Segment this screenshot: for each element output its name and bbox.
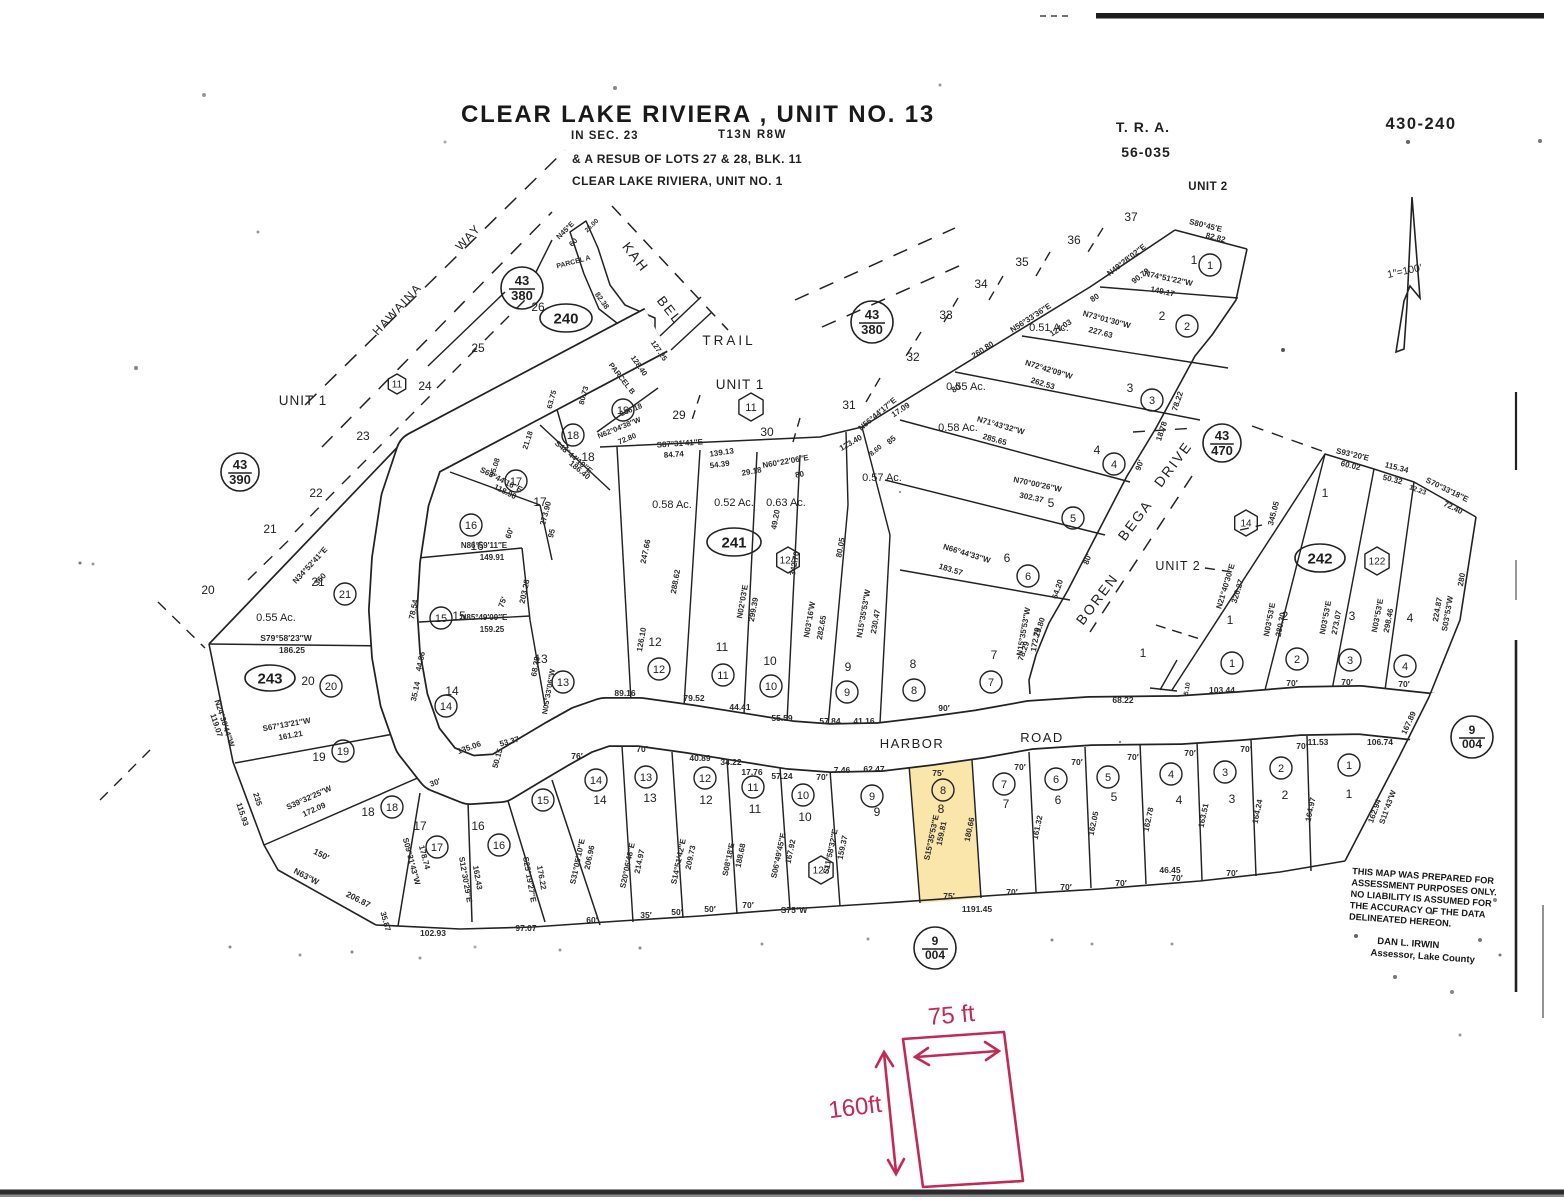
svg-text:13: 13 [643, 791, 657, 805]
svg-text:IN SEC. 23: IN SEC. 23 [571, 130, 639, 142]
svg-text:19: 19 [337, 746, 349, 758]
svg-text:15: 15 [435, 613, 447, 625]
svg-text:14: 14 [1240, 519, 1252, 530]
svg-text:10: 10 [763, 654, 777, 668]
svg-text:18: 18 [361, 805, 375, 819]
svg-text:T13N R8W: T13N R8W [718, 129, 787, 141]
svg-text:26: 26 [531, 300, 545, 314]
svg-text:70′: 70′ [1014, 762, 1026, 772]
svg-text:4: 4 [1094, 443, 1101, 457]
svg-text:242: 242 [1307, 550, 1332, 567]
svg-text:10: 10 [765, 681, 777, 693]
svg-text:S79°58′23″W: S79°58′23″W [260, 633, 313, 643]
svg-text:89.16: 89.16 [614, 688, 636, 698]
svg-text:390: 390 [229, 472, 251, 487]
svg-text:3: 3 [1149, 395, 1155, 407]
svg-text:149.91: 149.91 [480, 553, 505, 562]
svg-text:57.84: 57.84 [819, 716, 841, 726]
svg-text:7.46: 7.46 [834, 765, 851, 775]
svg-text:ROAD: ROAD [1020, 730, 1064, 745]
svg-text:1: 1 [1207, 260, 1213, 272]
svg-text:2: 2 [1294, 654, 1300, 666]
svg-text:103.44: 103.44 [1209, 685, 1235, 695]
svg-text:18: 18 [386, 802, 398, 814]
svg-text:6: 6 [1055, 793, 1062, 807]
svg-text:9: 9 [1469, 723, 1476, 737]
svg-text:240: 240 [553, 310, 578, 327]
svg-text:17: 17 [413, 819, 427, 833]
svg-text:CLEAR LAKE RIVIERA , UNIT N: CLEAR LAKE RIVIERA , UNIT NO. 13 [461, 101, 935, 128]
svg-text:70′: 70′ [816, 772, 828, 782]
svg-text:12: 12 [648, 635, 662, 649]
svg-text:62.47: 62.47 [863, 764, 885, 774]
svg-text:UNIT 2: UNIT 2 [1155, 559, 1200, 573]
svg-text:22: 22 [309, 486, 323, 500]
svg-text:15: 15 [537, 795, 549, 807]
svg-text:16: 16 [465, 520, 477, 532]
svg-text:5: 5 [1070, 513, 1076, 525]
svg-text:2: 2 [1282, 788, 1289, 802]
svg-text:30: 30 [760, 425, 774, 439]
svg-text:97.07: 97.07 [515, 923, 537, 933]
svg-text:0.58 Ac.: 0.58 Ac. [652, 499, 692, 511]
svg-text:13: 13 [640, 772, 652, 784]
svg-text:70′: 70′ [636, 744, 648, 754]
svg-text:4: 4 [1407, 611, 1414, 625]
svg-text:1: 1 [1191, 253, 1198, 267]
svg-text:10: 10 [798, 810, 812, 824]
svg-text:20: 20 [201, 583, 215, 597]
svg-text:7: 7 [988, 677, 994, 689]
svg-text:0.63 Ac.: 0.63 Ac. [766, 497, 806, 509]
svg-text:14: 14 [593, 793, 607, 807]
svg-text:55.59: 55.59 [771, 713, 793, 723]
svg-text:35′: 35′ [640, 910, 652, 920]
svg-text:2: 2 [1184, 321, 1190, 333]
svg-text:TRAIL: TRAIL [702, 333, 755, 348]
svg-text:0.58 Ac.: 0.58 Ac. [938, 422, 978, 434]
svg-text:5: 5 [1105, 772, 1111, 784]
svg-text:106.74: 106.74 [1367, 737, 1393, 747]
svg-text:21: 21 [263, 522, 277, 536]
svg-text:14: 14 [590, 775, 602, 787]
svg-text:9: 9 [845, 660, 852, 674]
svg-text:3: 3 [1347, 655, 1353, 667]
svg-text:70′: 70′ [1115, 878, 1127, 888]
svg-text:36: 36 [1067, 233, 1081, 247]
svg-text:7: 7 [1001, 779, 1007, 791]
svg-text:7: 7 [991, 648, 998, 662]
svg-text:43: 43 [1215, 428, 1229, 443]
svg-text:N85°49′09″E: N85°49′09″E [461, 613, 508, 622]
svg-text:34.22: 34.22 [720, 757, 742, 767]
svg-text:43: 43 [865, 307, 879, 322]
svg-text:0.57 Ac.: 0.57 Ac. [862, 472, 902, 484]
svg-text:3: 3 [1229, 792, 1236, 806]
svg-text:70′: 70′ [1006, 887, 1018, 897]
svg-text:7: 7 [1003, 797, 1010, 811]
svg-text:70′: 70′ [1226, 868, 1238, 878]
svg-text:14: 14 [445, 684, 459, 698]
svg-text:50′: 50′ [671, 907, 683, 917]
svg-text:50′: 50′ [704, 904, 716, 914]
svg-text:20: 20 [325, 681, 337, 693]
svg-text:5: 5 [1111, 790, 1118, 804]
svg-text:18: 18 [567, 430, 579, 442]
svg-text:16: 16 [493, 840, 505, 852]
svg-text:29: 29 [672, 408, 686, 422]
svg-text:60′: 60′ [586, 915, 598, 925]
svg-text:21: 21 [339, 589, 351, 601]
svg-text:16: 16 [471, 819, 485, 833]
svg-text:70′: 70′ [1071, 757, 1083, 767]
svg-text:380: 380 [861, 322, 883, 337]
svg-text:8: 8 [938, 802, 945, 816]
svg-text:43: 43 [233, 457, 247, 472]
svg-text:32: 32 [906, 350, 920, 364]
svg-text:6: 6 [1004, 551, 1011, 565]
svg-text:004: 004 [1462, 737, 1482, 751]
svg-text:6: 6 [1053, 774, 1059, 786]
svg-text:11: 11 [392, 380, 403, 391]
svg-text:90′: 90′ [938, 703, 950, 713]
svg-text:12: 12 [699, 773, 711, 785]
svg-text:75 ft: 75 ft [927, 1000, 976, 1031]
svg-text:13: 13 [557, 677, 569, 689]
svg-text:70′: 70′ [1286, 678, 1298, 688]
svg-text:79.52: 79.52 [683, 693, 705, 703]
svg-text:84.74: 84.74 [664, 449, 685, 459]
svg-text:70′: 70′ [1184, 748, 1196, 758]
svg-text:11: 11 [716, 640, 729, 654]
svg-text:1191.45: 1191.45 [962, 904, 993, 914]
svg-text:43: 43 [515, 273, 529, 288]
svg-text:56-035: 56-035 [1121, 144, 1171, 160]
svg-text:1: 1 [1346, 787, 1353, 801]
svg-text:N86°59′11″E: N86°59′11″E [461, 541, 508, 550]
svg-text:33: 33 [939, 308, 953, 322]
svg-text:12: 12 [653, 664, 665, 676]
svg-text:241: 241 [721, 534, 746, 551]
svg-text:11.53: 11.53 [1308, 737, 1329, 747]
svg-text:44.41: 44.41 [729, 702, 751, 712]
svg-text:9: 9 [874, 805, 881, 819]
svg-text:6: 6 [1025, 571, 1031, 583]
svg-text:37: 37 [1124, 210, 1138, 224]
svg-text:122: 122 [1369, 557, 1386, 568]
svg-text:243: 243 [257, 670, 282, 687]
svg-text:1: 1 [1346, 760, 1352, 772]
svg-text:23: 23 [356, 429, 370, 443]
svg-text:3: 3 [1222, 767, 1228, 779]
svg-text:34: 34 [974, 277, 988, 291]
svg-text:75′: 75′ [932, 768, 944, 778]
svg-text:57.24: 57.24 [771, 771, 793, 781]
svg-text:11: 11 [747, 782, 758, 794]
svg-text:11: 11 [717, 670, 728, 682]
svg-text:4: 4 [1111, 459, 1117, 471]
svg-text:9: 9 [932, 934, 939, 948]
svg-text:380: 380 [511, 288, 533, 303]
svg-text:T. R. A.: T. R. A. [1116, 119, 1170, 135]
svg-text:& A RESUB OF LOTS 27 &: & A RESUB OF LOTS 27 & 28, BLK. 11 [572, 152, 802, 166]
svg-text:1: 1 [1322, 486, 1329, 500]
svg-text:35: 35 [1015, 255, 1029, 269]
svg-text:1: 1 [1227, 613, 1234, 627]
svg-text:14: 14 [440, 701, 452, 713]
svg-text:1: 1 [1229, 658, 1235, 670]
svg-text:004: 004 [925, 948, 945, 962]
svg-text:9: 9 [844, 687, 850, 699]
svg-text:70′: 70′ [1240, 744, 1252, 754]
svg-text:70′: 70′ [1060, 882, 1072, 892]
svg-text:0.52 Ac.: 0.52 Ac. [714, 497, 754, 509]
svg-text:9: 9 [869, 791, 875, 803]
svg-text:75′: 75′ [943, 891, 955, 901]
svg-text:8: 8 [911, 685, 917, 697]
svg-text:CLEAR LAKE RIVIERA, UNIT: CLEAR LAKE RIVIERA, UNIT NO. 1 [572, 174, 783, 188]
svg-text:1: 1 [1140, 646, 1147, 660]
svg-text:19: 19 [312, 750, 326, 764]
svg-text:430-240: 430-240 [1385, 115, 1456, 133]
svg-text:20: 20 [301, 674, 315, 688]
svg-text:S75°W: S75°W [781, 905, 809, 915]
svg-text:102.93: 102.93 [420, 928, 446, 938]
svg-text:24: 24 [418, 379, 432, 393]
svg-text:76′: 76′ [571, 751, 583, 761]
svg-text:2: 2 [1159, 309, 1166, 323]
svg-text:46.45: 46.45 [1159, 865, 1181, 875]
svg-text:70′: 70′ [1296, 741, 1308, 751]
svg-text:HARBOR: HARBOR [880, 736, 945, 751]
svg-text:17.76: 17.76 [741, 767, 763, 777]
svg-text:159.25: 159.25 [480, 625, 505, 634]
svg-text:31: 31 [842, 398, 856, 412]
svg-text:5: 5 [1048, 496, 1055, 510]
svg-text:41.16: 41.16 [853, 716, 875, 726]
svg-text:470: 470 [1211, 443, 1233, 458]
svg-text:11: 11 [745, 402, 756, 414]
svg-text:UNIT 1: UNIT 1 [716, 377, 765, 392]
svg-text:UNIT 2: UNIT 2 [1188, 181, 1227, 193]
svg-text:4: 4 [1402, 661, 1408, 673]
svg-text:17: 17 [431, 842, 443, 854]
svg-text:10: 10 [797, 790, 809, 802]
svg-text:0.55 Ac.: 0.55 Ac. [256, 612, 296, 624]
svg-text:8: 8 [910, 657, 917, 671]
svg-text:70′: 70′ [1398, 679, 1410, 689]
svg-text:68.22: 68.22 [1112, 695, 1134, 705]
svg-text:3: 3 [1127, 381, 1134, 395]
svg-text:4: 4 [1176, 793, 1183, 807]
svg-text:70′: 70′ [1341, 677, 1353, 687]
svg-text:2: 2 [1278, 763, 1284, 775]
svg-text:186.25: 186.25 [279, 645, 305, 655]
svg-text:25: 25 [471, 341, 485, 355]
svg-text:4: 4 [1168, 769, 1174, 781]
svg-text:8: 8 [940, 785, 946, 797]
svg-text:UNIT 1: UNIT 1 [279, 393, 328, 408]
svg-text:40.89: 40.89 [689, 753, 711, 763]
svg-text:11: 11 [749, 802, 762, 816]
svg-text:70′: 70′ [1127, 752, 1139, 762]
svg-text:3: 3 [1349, 609, 1356, 623]
svg-text:70′: 70′ [742, 900, 754, 910]
svg-text:12: 12 [699, 793, 713, 807]
